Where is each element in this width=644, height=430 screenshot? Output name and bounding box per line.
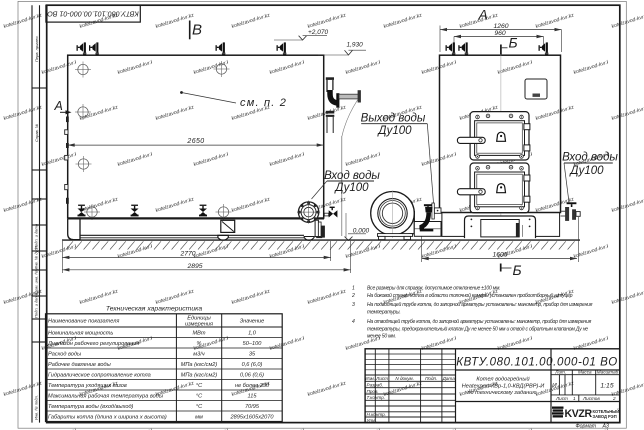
svg-text:А: А: [54, 99, 63, 113]
svg-text:1605: 1605: [492, 252, 507, 259]
svg-text:Ду100: Ду100: [568, 165, 604, 177]
svg-text:2: 2: [612, 396, 616, 401]
svg-text:Вход воды: Вход воды: [562, 151, 618, 163]
svg-text:0,000: 0,000: [353, 227, 370, 234]
svg-text:В: В: [192, 22, 202, 39]
svg-text:На боковой стенке котла в обла: На боковой стенке котла в области топочн…: [367, 292, 573, 299]
svg-text:Ду100: Ду100: [376, 125, 412, 137]
svg-text:см. п. 2: см. п. 2: [240, 97, 287, 109]
svg-text:Б: Б: [509, 34, 518, 50]
svg-text:КВТУ.080.101.00.000-01 ВО: КВТУ.080.101.00.000-01 ВО: [47, 10, 139, 19]
svg-text:2: 2: [351, 293, 355, 299]
svg-text:Температура уходящих газов: Температура уходящих газов: [48, 383, 127, 389]
svg-text:0,06 (0,6): 0,06 (0,6): [240, 373, 264, 379]
svg-text:1,0: 1,0: [248, 331, 257, 337]
svg-text:Heatexpert-КВр-1,0-КВД(РВР)-И: Heatexpert-КВр-1,0-КВД(РВР)-И: [462, 383, 545, 389]
svg-text:°С: °С: [196, 383, 203, 389]
svg-text:На подводящей трубе котла, д: На подводящей трубе котла, до запорной а…: [367, 301, 593, 308]
svg-text:Масштаб: Масштаб: [597, 369, 619, 374]
svg-text:Котел водогрейный: Котел водогрейный: [476, 375, 529, 382]
svg-text:3: 3: [352, 302, 355, 308]
svg-text:измерения: измерения: [185, 322, 213, 328]
svg-text:Перв. примен.: Перв. примен.: [34, 35, 39, 62]
svg-text:2895х1605х2070: 2895х1605х2070: [230, 415, 275, 421]
svg-text:Подп.: Подп.: [425, 376, 437, 381]
svg-text:Изм.: Изм.: [365, 376, 375, 381]
svg-text:50–100: 50–100: [243, 341, 263, 347]
svg-text:+2,070: +2,070: [308, 29, 328, 36]
svg-text:KVZR: KVZR: [565, 408, 593, 420]
svg-text:Выход воды: Выход воды: [361, 112, 426, 124]
svg-text:Справ. №: Справ. №: [34, 123, 39, 142]
svg-text:температуры, предохранительный: температуры, предохранительный клапан Ду…: [367, 325, 588, 332]
svg-text:Вход воды: Вход воды: [324, 170, 380, 182]
svg-text:2770: 2770: [179, 251, 195, 258]
svg-text:А: А: [478, 7, 488, 23]
svg-text:Расход воды: Расход воды: [48, 352, 81, 358]
svg-text:°С: °С: [196, 404, 203, 410]
svg-text:0,6 (6,0): 0,6 (6,0): [242, 362, 263, 368]
svg-text:не более 250: не более 250: [235, 383, 270, 389]
svg-text:Формат: Формат: [576, 424, 597, 430]
svg-text:Дата: Дата: [442, 376, 456, 381]
svg-text:Н.контр.: Н.контр.: [367, 412, 386, 417]
svg-text:МВт: МВт: [192, 331, 205, 337]
svg-text:1260: 1260: [493, 23, 508, 30]
svg-text:Наименование показателя: Наименование показателя: [48, 319, 119, 325]
svg-text:А3: А3: [602, 424, 609, 430]
svg-text:1: 1: [573, 396, 576, 401]
svg-text:Ду100: Ду100: [333, 182, 369, 194]
svg-text:МПа (кгс/см2): МПа (кгс/см2): [181, 373, 218, 379]
svg-text:Лист: Лист: [375, 376, 388, 381]
svg-text:Инв. № подл.: Инв. № подл.: [34, 395, 39, 420]
svg-text:Т.контр.: Т.контр.: [367, 395, 386, 400]
svg-text:мм: мм: [195, 415, 203, 421]
svg-text:И: И: [552, 383, 557, 390]
svg-text:Максимальная рабочая температу: Максимальная рабочая температура воды: [48, 394, 163, 400]
svg-text:МПа (кгс/см2): МПа (кгс/см2): [181, 362, 218, 368]
svg-text:Пров.: Пров.: [367, 389, 379, 394]
svg-text:%: %: [197, 341, 202, 347]
svg-text:115: 115: [248, 394, 258, 400]
svg-text:Температура воды (вход/выход): Температура воды (вход/выход): [48, 404, 134, 410]
svg-text:Инв. № дубл.: Инв. № дубл.: [34, 245, 39, 270]
svg-text:N докум.: N докум.: [395, 376, 414, 381]
svg-text:ЗАВОД РЭП: ЗАВОД РЭП: [593, 414, 617, 419]
svg-text:На отводящей трубе котла, до з: На отводящей трубе котла, до запорной ар…: [367, 318, 592, 325]
svg-text:Утв.: Утв.: [367, 418, 377, 423]
svg-text:2650: 2650: [186, 138, 204, 145]
svg-text:Гидравлическое сопротивление к: Гидравлическое сопротивление котла: [48, 373, 151, 379]
svg-text:Значение: Значение: [240, 319, 265, 325]
svg-text:1,930: 1,930: [347, 42, 364, 49]
svg-text:менее 50 мм.: менее 50 мм.: [367, 334, 396, 340]
svg-text:Подп. и дата: Подп. и дата: [34, 292, 39, 318]
svg-text:Лист: Лист: [555, 396, 568, 401]
svg-text:по техническому заданию: по техническому заданию: [467, 390, 537, 396]
svg-text:Все размеры для справок, допус: Все размеры для справок, допустимое откл…: [367, 286, 500, 292]
svg-text:1: 1: [352, 286, 355, 292]
svg-text:Взам. инв. №: Взам. инв. №: [34, 270, 39, 295]
svg-text:Номинальная мощность: Номинальная мощность: [48, 331, 113, 337]
svg-text:Б: Б: [513, 262, 522, 278]
svg-text:Габариты котла (длина х ширина: Габариты котла (длина х ширина х высота): [48, 415, 167, 421]
svg-text:2895: 2895: [186, 263, 202, 270]
svg-text:70/95: 70/95: [245, 404, 260, 410]
svg-text:Диапазон рабочего регулировани: Диапазон рабочего регулирования: [47, 341, 139, 347]
svg-text:температуры.: температуры.: [367, 310, 401, 316]
svg-text:960: 960: [494, 30, 506, 37]
svg-text:Разраб.: Разраб.: [367, 383, 384, 388]
svg-text:Рабочее давление воды: Рабочее давление воды: [48, 362, 111, 368]
svg-text:1:15: 1:15: [600, 383, 613, 390]
svg-text:Масса: Масса: [578, 369, 592, 374]
svg-text:35: 35: [249, 352, 256, 358]
svg-text:°С: °С: [196, 394, 203, 400]
svg-text:Техническая характеристика: Техническая характеристика: [106, 305, 202, 312]
svg-text:м3/ч: м3/ч: [193, 352, 204, 358]
svg-text:Лит.: Лит.: [554, 369, 566, 374]
svg-text:КВТУ.080.101.00.000-01 ВО: КВТУ.080.101.00.000-01 ВО: [456, 357, 617, 369]
svg-text:4: 4: [352, 319, 355, 325]
svg-text:Листов: Листов: [582, 396, 600, 401]
